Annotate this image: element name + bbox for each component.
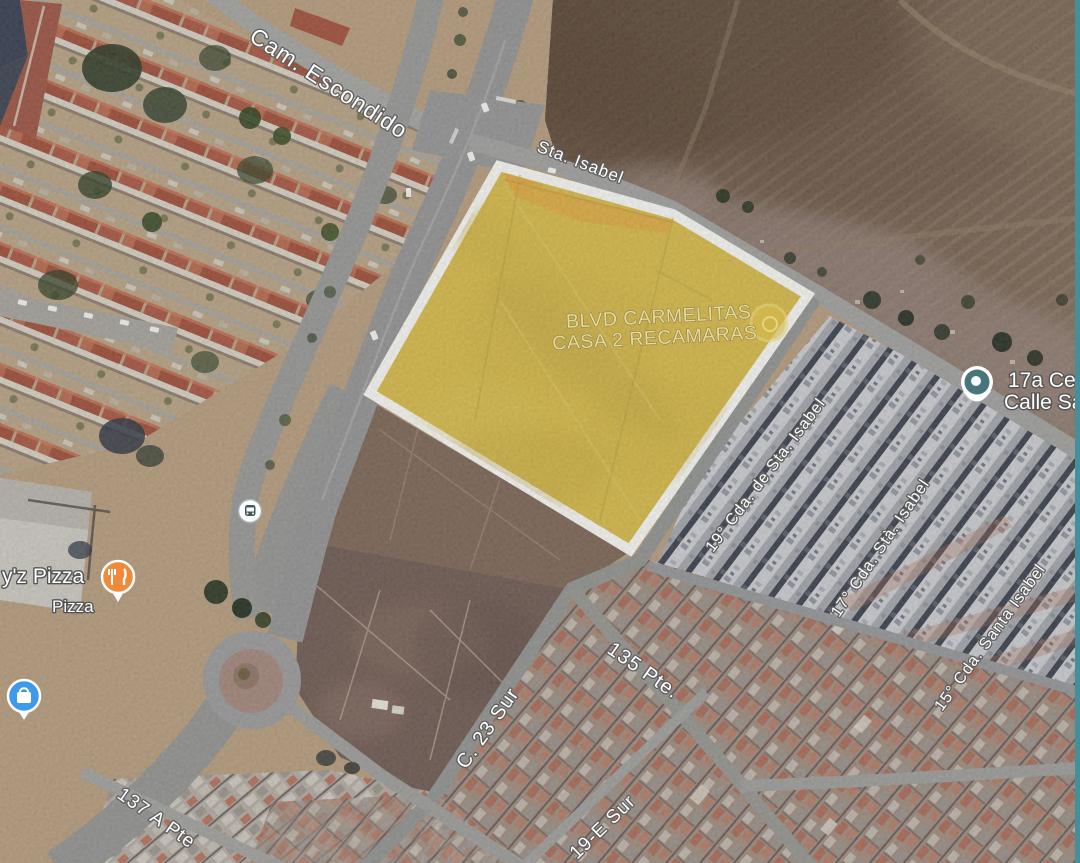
svg-text:Calle Sa: Calle Sa (1004, 391, 1080, 414)
svg-text:Pizza: Pizza (52, 597, 94, 616)
svg-text:17a Cer: 17a Cer (1008, 369, 1080, 392)
svg-text:y'z Pizza: y'z Pizza (2, 565, 85, 588)
